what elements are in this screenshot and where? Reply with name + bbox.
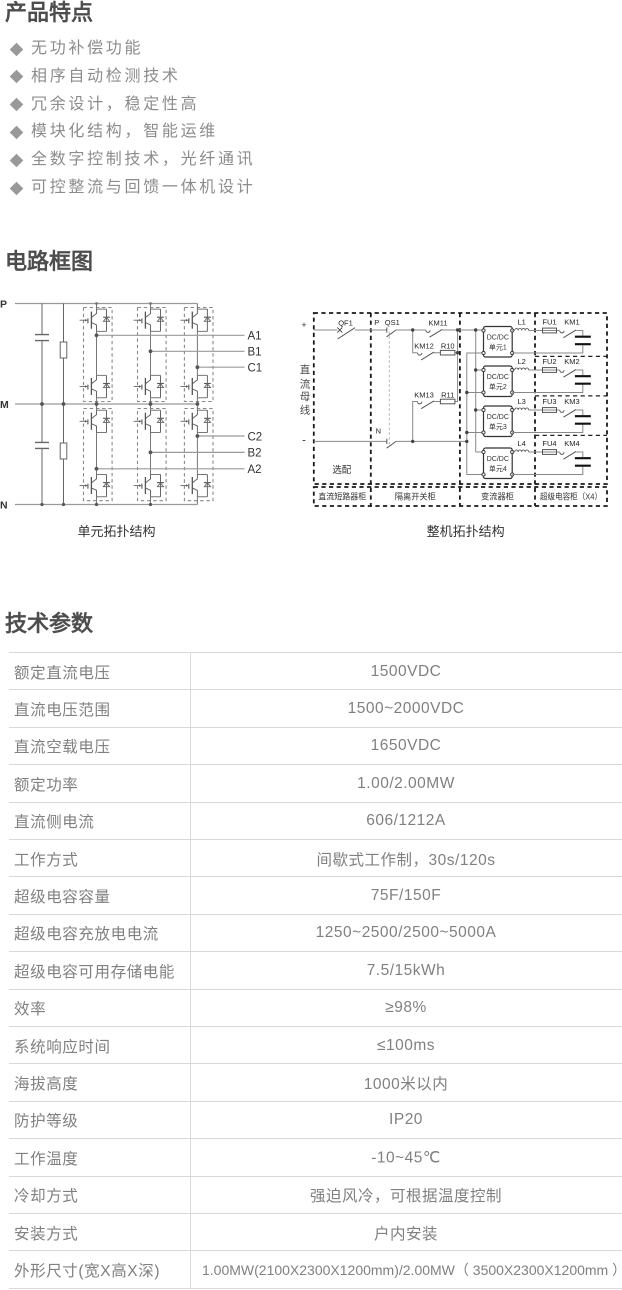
svg-text:KM12: KM12 <box>414 341 434 350</box>
svg-text:+: + <box>301 320 306 330</box>
svg-text:单元2: 单元2 <box>489 382 507 391</box>
svg-text:线: 线 <box>300 403 311 416</box>
svg-text:变流器柜: 变流器柜 <box>481 492 514 502</box>
svg-text:单元3: 单元3 <box>489 422 507 431</box>
svg-text:母: 母 <box>300 391 311 403</box>
svg-text:A2: A2 <box>248 464 262 476</box>
svg-text:FU3: FU3 <box>542 397 556 406</box>
svg-text:KM11: KM11 <box>428 318 447 327</box>
svg-text:B2: B2 <box>248 448 262 460</box>
svg-text:直: 直 <box>300 363 311 376</box>
svg-text:-: - <box>302 435 306 447</box>
svg-text:L1: L1 <box>518 318 526 327</box>
svg-text:QS1: QS1 <box>385 318 400 327</box>
svg-text:单元拓扑结构: 单元拓扑结构 <box>77 524 155 539</box>
svg-text:FU4: FU4 <box>542 439 556 448</box>
svg-text:N: N <box>0 500 8 512</box>
svg-text:C1: C1 <box>248 363 263 375</box>
svg-text:M: M <box>0 399 9 411</box>
svg-text:N: N <box>376 427 381 436</box>
svg-text:KM4: KM4 <box>564 439 579 448</box>
svg-text:L3: L3 <box>518 397 526 406</box>
svg-text:KM1: KM1 <box>564 318 579 327</box>
svg-text:P: P <box>0 299 7 311</box>
svg-text:DC/DC: DC/DC <box>487 414 509 421</box>
svg-text:C2: C2 <box>248 431 263 443</box>
svg-text:直流短路器柜: 直流短路器柜 <box>318 492 366 502</box>
svg-text:DC/DC: DC/DC <box>487 335 509 342</box>
svg-text:QF1: QF1 <box>338 319 353 328</box>
svg-text:P: P <box>374 318 379 327</box>
svg-text:单元1: 单元1 <box>489 343 507 352</box>
svg-text:KM2: KM2 <box>564 357 579 366</box>
svg-text:L2: L2 <box>518 357 526 366</box>
svg-text:隔离开关柜: 隔离开关柜 <box>395 492 436 502</box>
svg-text:B1: B1 <box>248 347 262 359</box>
svg-text:整机拓扑结构: 整机拓扑结构 <box>427 524 505 539</box>
svg-text:DC/DC: DC/DC <box>487 374 509 381</box>
svg-text:FU1: FU1 <box>542 318 556 327</box>
svg-text:KM3: KM3 <box>564 397 579 406</box>
svg-text:DC/DC: DC/DC <box>487 456 509 463</box>
svg-text:单元4: 单元4 <box>489 464 507 473</box>
svg-text:L4: L4 <box>518 439 526 448</box>
svg-text:FU2: FU2 <box>542 357 556 366</box>
svg-text:A1: A1 <box>248 331 262 343</box>
svg-text:选配: 选配 <box>332 464 352 476</box>
svg-text:R10: R10 <box>441 341 455 350</box>
svg-text:KM13: KM13 <box>414 390 434 399</box>
svg-text:流: 流 <box>300 377 311 390</box>
svg-text:R11: R11 <box>441 390 454 399</box>
svg-text:超级电容柜（X4）: 超级电容柜（X4） <box>540 492 602 502</box>
